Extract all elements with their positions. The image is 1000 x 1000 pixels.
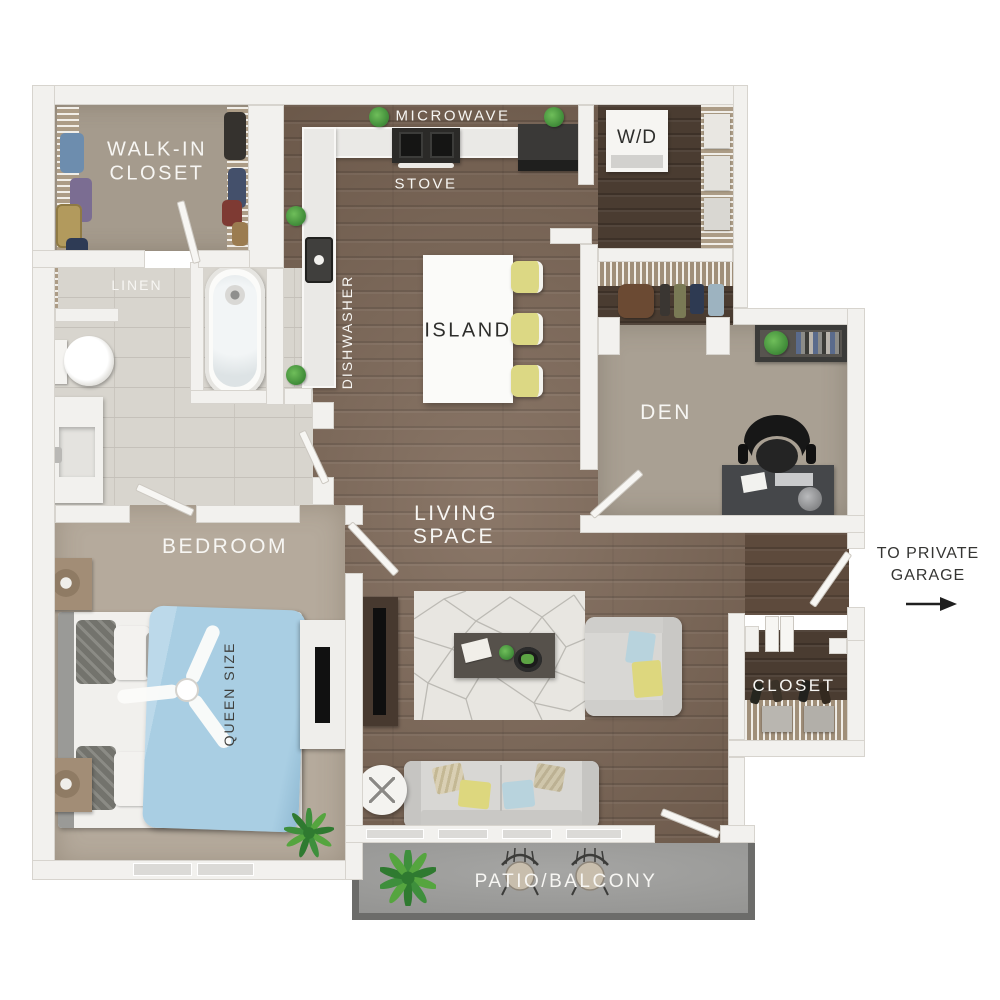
- wall: [55, 308, 119, 322]
- lamp-icon: [52, 569, 80, 597]
- shoe-box: [762, 706, 792, 732]
- wall: [598, 248, 733, 262]
- garage-note-line1: TO PRIVATE: [868, 543, 988, 565]
- wall: [728, 613, 745, 740]
- kitchen-sink: [305, 237, 333, 283]
- window: [438, 829, 488, 839]
- hanging-clothes: [60, 133, 84, 173]
- bar-stool: [511, 313, 543, 345]
- armchair-arm: [585, 617, 663, 633]
- storage-basket: [704, 198, 730, 230]
- walk-in-closet-label: WALK-IN: [107, 139, 207, 162]
- shelf-plant-icon: [764, 331, 788, 355]
- den-bookshelf: [755, 325, 847, 362]
- office-chair-icon: [736, 410, 818, 484]
- shoe-box: [804, 706, 834, 732]
- wall: [829, 638, 847, 654]
- wall: [706, 317, 730, 355]
- bowl-greens: [521, 654, 534, 664]
- wall: [728, 757, 745, 827]
- den-label: DEN: [640, 401, 692, 425]
- closet-door-panel: [780, 616, 794, 652]
- queen-size-label: QUEEN SIZE: [221, 642, 237, 747]
- throw-pillow: [533, 763, 566, 793]
- desk-lamp-icon: [798, 487, 822, 511]
- window: [197, 863, 254, 876]
- wall: [32, 85, 748, 105]
- faucet-icon: [314, 255, 324, 265]
- washer-dryer-door: [611, 155, 663, 168]
- refrigerator-base: [518, 160, 579, 171]
- wall: [598, 317, 620, 355]
- den-closet-shelf: [598, 262, 733, 286]
- patio-label: PATIO/BALCONY: [475, 871, 658, 893]
- coffee-table: [454, 633, 555, 678]
- wall: [55, 505, 130, 523]
- bar-stool: [511, 365, 543, 397]
- wall: [733, 85, 748, 308]
- sink-basin: [59, 427, 95, 477]
- laundry-shelving: [701, 105, 733, 252]
- counter-plant-icon: [544, 107, 564, 127]
- hanging-clothes: [708, 284, 724, 316]
- armchair-back: [662, 617, 682, 716]
- toilet-bowl: [64, 336, 114, 386]
- wall: [198, 250, 250, 268]
- sofa: [404, 761, 599, 828]
- stove-label: STOVE: [394, 176, 457, 193]
- shoes: [232, 222, 248, 246]
- garage-note: TO PRIVATE GARAGE: [868, 543, 988, 587]
- window: [502, 829, 552, 839]
- wall: [733, 308, 865, 325]
- counter-plant-icon: [286, 365, 306, 385]
- plant-icon: [380, 850, 436, 906]
- bar-stool: [511, 261, 543, 293]
- garage-arrow-icon: [904, 594, 958, 614]
- burner-icon: [399, 132, 423, 158]
- floor-plan: WALK-IN CLOSET LINEN MICROWAVE STOVE W/D…: [0, 0, 1000, 1000]
- microwave-label: MICROWAVE: [396, 108, 511, 125]
- armchair: [585, 617, 682, 716]
- storage-basket: [704, 114, 730, 148]
- stove-cooktop: [392, 128, 460, 163]
- magazine: [461, 638, 492, 663]
- wall: [196, 505, 300, 523]
- armchair-arm: [585, 700, 663, 716]
- counter-plant-icon: [286, 206, 306, 226]
- living-space-label: LIVING: [414, 502, 498, 526]
- island-label: ISLAND: [424, 320, 511, 343]
- wall: [266, 268, 284, 405]
- wall: [580, 515, 865, 533]
- wall: [248, 105, 284, 268]
- wall: [580, 244, 598, 470]
- dishwasher-label: DISHWASHER: [339, 275, 355, 389]
- storage-basket: [704, 156, 730, 190]
- tv-icon: [315, 647, 330, 723]
- living-space-label: SPACE: [413, 525, 495, 549]
- wall: [578, 105, 594, 185]
- bed-pillow: [76, 620, 116, 684]
- walk-in-closet-label: CLOSET: [109, 163, 204, 186]
- wall: [720, 825, 755, 843]
- bathroom-vanity: [48, 397, 103, 503]
- bedroom-label: BEDROOM: [162, 535, 288, 559]
- sofa-arm: [582, 761, 599, 828]
- bowl: [514, 647, 542, 672]
- wall: [847, 607, 865, 642]
- wall: [284, 388, 312, 405]
- burner-icon: [430, 132, 454, 158]
- wall: [728, 740, 865, 757]
- window: [133, 863, 192, 876]
- window: [366, 829, 424, 839]
- oven-handle: [398, 163, 454, 168]
- tv-icon: [373, 608, 386, 715]
- hanging-clothes: [674, 284, 686, 318]
- counter-plant-icon: [369, 107, 389, 127]
- closet-door-panel: [765, 616, 779, 652]
- hanging-clothes: [618, 284, 654, 318]
- throw-pillow: [502, 779, 536, 809]
- entry-closet-label: CLOSET: [752, 676, 835, 696]
- tub-drain-icon: [225, 285, 245, 305]
- wall: [745, 626, 759, 652]
- hanging-clothes: [690, 284, 704, 314]
- hanging-clothes: [660, 284, 670, 316]
- plant-icon: [284, 808, 334, 858]
- books: [796, 332, 840, 354]
- throw-pillow: [631, 660, 663, 698]
- wall: [32, 250, 145, 268]
- living-tv-console: [362, 597, 398, 726]
- washer-dryer-label: W/D: [617, 127, 657, 149]
- garage-note-line2: GARAGE: [868, 565, 988, 587]
- hanging-clothes: [224, 112, 246, 160]
- side-table: [357, 765, 407, 815]
- window: [566, 829, 622, 839]
- entry-closet-shoe-shelf: [745, 700, 848, 740]
- throw-pillow: [458, 779, 492, 809]
- bathtub: [205, 265, 265, 397]
- wall: [190, 262, 204, 402]
- refrigerator: [518, 124, 579, 171]
- wall: [550, 228, 592, 244]
- lamp-icon: [52, 770, 80, 798]
- bedroom-dresser: [300, 620, 346, 749]
- ceiling-fan-icon: [113, 616, 261, 764]
- wall: [312, 402, 334, 429]
- wall: [32, 85, 55, 880]
- table-base-icon: [369, 777, 395, 803]
- linen-label: LINEN: [111, 277, 162, 293]
- table-plant-icon: [499, 645, 514, 660]
- wall: [847, 308, 865, 549]
